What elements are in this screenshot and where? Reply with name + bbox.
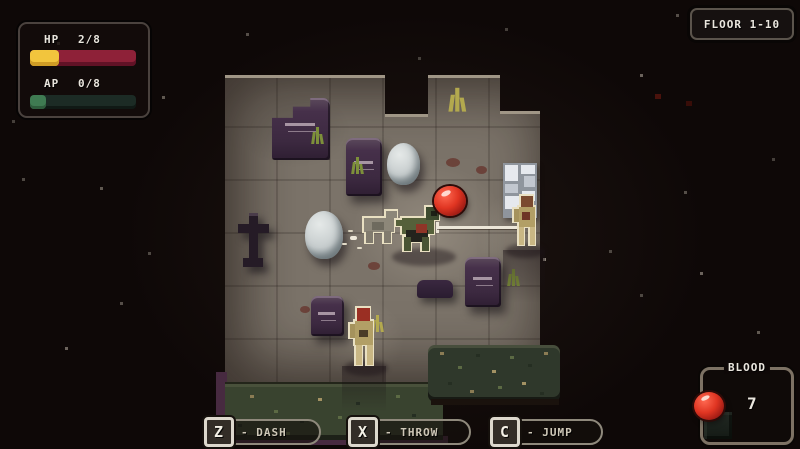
floor-edge-highlight xyxy=(225,75,385,78)
tombstone-inscription xyxy=(285,123,315,126)
blood-panel: BLOOD 7 xyxy=(700,367,794,445)
blood-splat xyxy=(476,166,487,174)
dash-dust-particles xyxy=(350,236,357,240)
zombie-enemy xyxy=(513,194,541,252)
player-character xyxy=(396,204,442,254)
spear xyxy=(437,226,522,229)
tombstone xyxy=(465,257,501,307)
tombstone xyxy=(311,296,344,336)
tombstone xyxy=(417,280,453,298)
hp-value: 2/8 xyxy=(78,33,101,46)
ap-bar xyxy=(30,95,136,109)
key-x[interactable]: X xyxy=(348,417,378,447)
grass-tuft xyxy=(352,156,364,174)
hp-bar-fill xyxy=(30,50,59,66)
tombstone-inscription xyxy=(473,277,492,280)
blood-splat xyxy=(368,262,380,270)
grass-tuft xyxy=(450,86,467,111)
floor-edge-highlight xyxy=(500,111,540,114)
blood-splat xyxy=(300,306,310,313)
hp-label: HP xyxy=(44,33,59,46)
blood-splat xyxy=(446,158,460,167)
floor-edge-highlight xyxy=(385,114,428,117)
floor-badge: FLOOR 1-10 xyxy=(690,8,794,40)
ap-value: 0/8 xyxy=(78,77,101,90)
hint-jump[interactable]: C - JUMP xyxy=(493,419,603,445)
blood-orb xyxy=(434,186,466,216)
blood-count: 7 xyxy=(747,394,758,413)
grass-patch xyxy=(428,345,560,402)
dash-ghost xyxy=(360,210,400,246)
hint-dash-label: - DASH xyxy=(241,426,287,439)
game-viewport[interactable]: HP 2/8 AP 0/8 FLOOR 1-10 BLOOD 7 Z - DAS… xyxy=(0,0,800,449)
ap-label: AP xyxy=(44,77,59,90)
blood-orb-icon xyxy=(694,392,724,420)
cross-statue xyxy=(236,208,270,270)
egg-boulder xyxy=(387,143,420,185)
egg-boulder xyxy=(305,211,343,259)
grass-tuft xyxy=(312,126,324,144)
key-z[interactable]: Z xyxy=(204,417,234,447)
hint-throw-label: - THROW xyxy=(385,426,438,439)
floor-edge-highlight xyxy=(428,75,500,78)
zombie-shade xyxy=(342,366,386,418)
hp-bar xyxy=(30,50,136,66)
hint-jump-label: - JUMP xyxy=(527,426,573,439)
grass-debris xyxy=(0,0,4,3)
zombie-shade xyxy=(503,250,545,310)
ap-bar-fill xyxy=(30,95,46,109)
hint-dash[interactable]: Z - DASH xyxy=(207,419,321,445)
hint-throw[interactable]: X - THROW xyxy=(351,419,471,445)
floor-badge-label: FLOOR 1-10 xyxy=(704,18,780,31)
zombie-enemy xyxy=(349,308,379,368)
stats-panel: HP 2/8 AP 0/8 xyxy=(18,22,150,118)
blood-title: BLOOD xyxy=(724,361,770,374)
tombstone-inscription xyxy=(318,312,335,315)
grass-patch-edge xyxy=(431,399,559,405)
key-c[interactable]: C xyxy=(490,417,520,447)
